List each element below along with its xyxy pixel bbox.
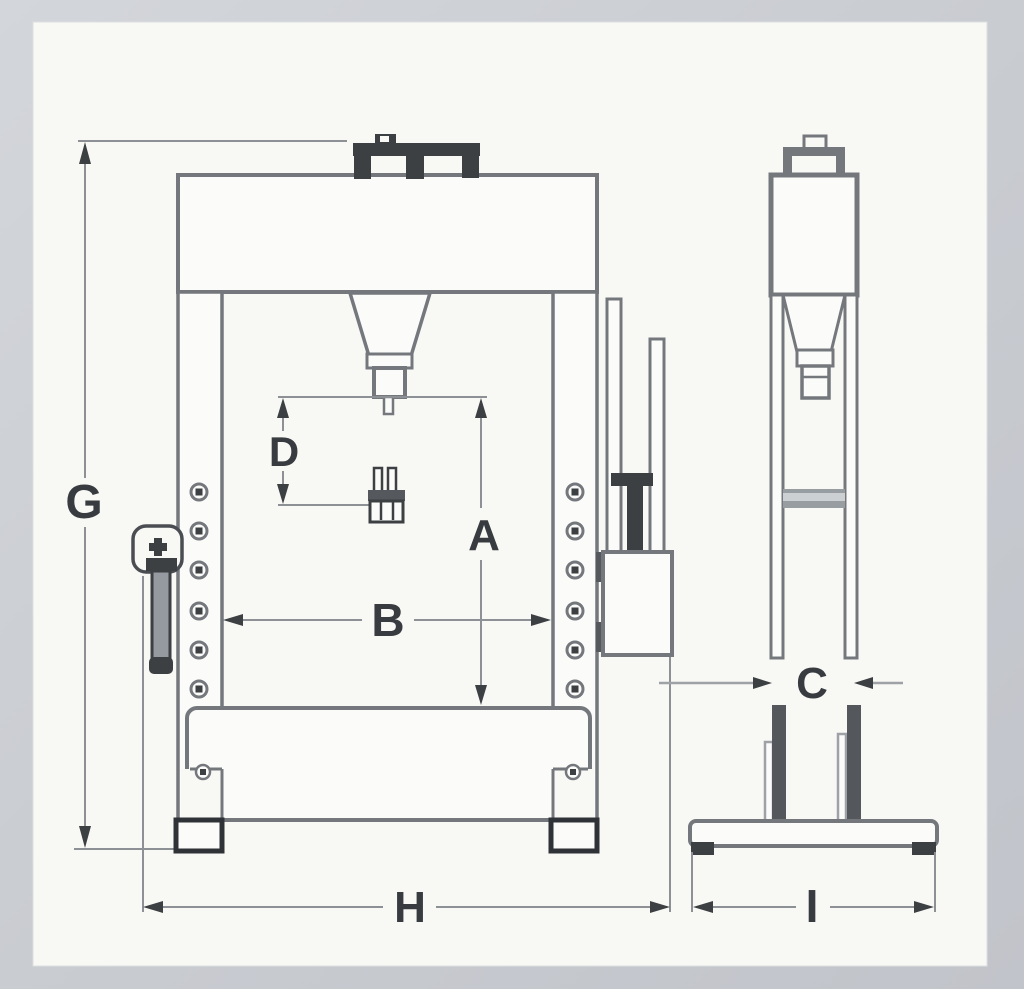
bracket-leg	[462, 156, 479, 178]
bracket-bar	[353, 143, 480, 156]
handle-shaft	[152, 571, 170, 661]
leg-inner	[772, 705, 786, 826]
right-foot	[551, 820, 597, 851]
leg-inner	[847, 705, 861, 826]
dim-label-A: A	[468, 511, 500, 560]
anvil-prong	[388, 468, 396, 492]
pump-plunger-head	[611, 473, 653, 486]
base-foot	[691, 842, 714, 855]
dim-label-D: D	[269, 428, 299, 475]
pump-plunger-stem	[627, 486, 643, 553]
ram-collar	[367, 354, 412, 368]
head-beam	[178, 175, 597, 292]
base-slab	[690, 821, 937, 846]
anvil-body	[370, 501, 403, 522]
leg-outer	[838, 734, 846, 826]
table-edge	[783, 489, 845, 508]
ram-nose	[374, 368, 405, 397]
channel-rail	[771, 295, 783, 658]
work-table	[181, 708, 594, 824]
handle-pivot	[146, 558, 177, 571]
table-pin	[570, 769, 576, 775]
table-slab	[187, 708, 590, 820]
knob-notch	[380, 136, 389, 142]
dim-label-I: I	[806, 880, 819, 932]
dim-label-H: H	[394, 883, 426, 932]
dim-label-C: C	[796, 659, 828, 708]
cylinder-body	[771, 175, 857, 295]
leg-outer	[765, 742, 773, 826]
table-pin	[200, 769, 206, 775]
dim-label-G: G	[65, 476, 102, 529]
table-band-highlight	[783, 493, 845, 501]
ram-nose-side	[802, 366, 829, 398]
left-foot	[176, 820, 222, 851]
base-foot	[912, 842, 936, 855]
ram-collar-side	[797, 350, 833, 366]
scanned-page: G	[0, 0, 1024, 989]
handle-ball	[149, 657, 173, 674]
pump-lever-tube	[650, 339, 664, 552]
handle-bolt	[154, 538, 162, 556]
anvil-prong	[374, 468, 382, 492]
ram-tip	[384, 397, 393, 414]
technical-drawing: G	[0, 0, 1024, 989]
bracket-leg	[354, 156, 371, 179]
pump-body	[603, 552, 672, 655]
dim-label-B: B	[371, 594, 404, 646]
bracket-leg	[406, 156, 424, 179]
anvil-band	[368, 490, 405, 501]
channel-rail	[845, 295, 857, 658]
pump-lever-tube	[607, 299, 621, 552]
